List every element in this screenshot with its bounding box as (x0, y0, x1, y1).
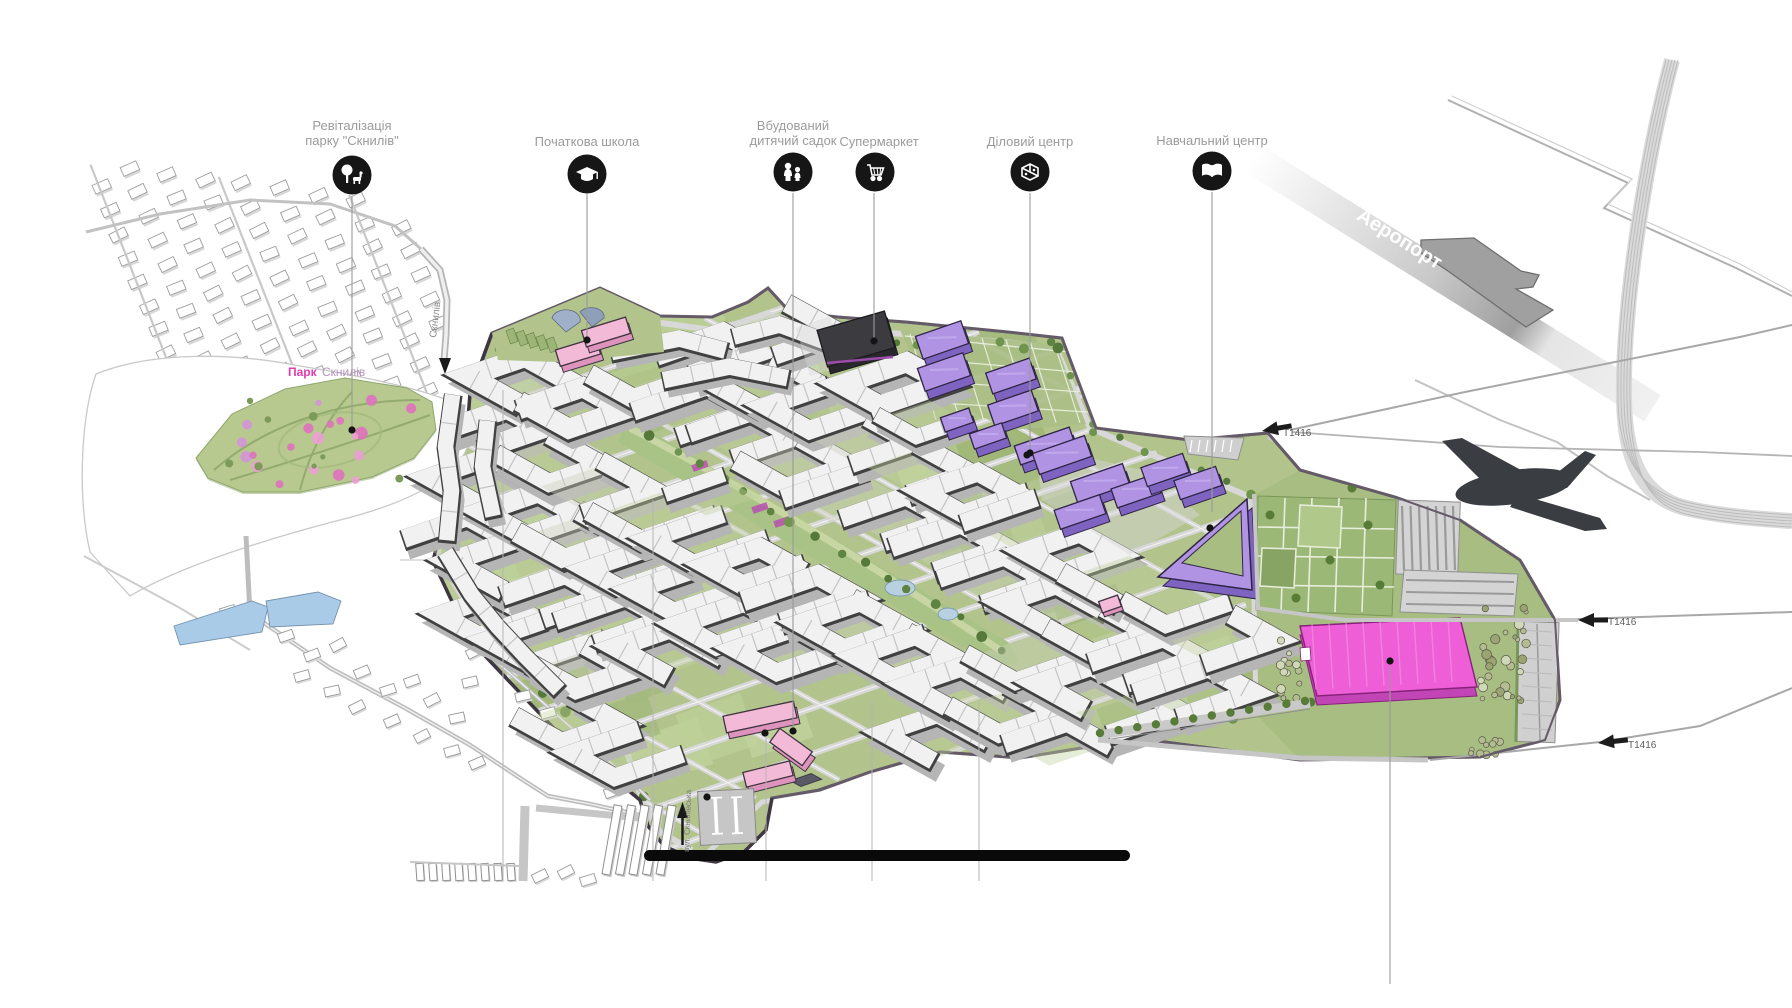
svg-text:Т1416: Т1416 (1283, 428, 1312, 439)
svg-text:Навчальний центр: Навчальний центр (1156, 133, 1268, 148)
svg-text:Ревіталізація: Ревіталізація (312, 118, 391, 133)
svg-text:Т1416: Т1416 (1608, 617, 1637, 628)
svg-text:дитячий садок: дитячий садок (750, 133, 837, 148)
svg-text:Діловий центр: Діловий центр (987, 134, 1074, 149)
svg-text:Парк: Парк (288, 365, 318, 379)
svg-text:Початкова школа: Початкова школа (535, 134, 640, 149)
svg-text:Вбудований: Вбудований (757, 118, 829, 133)
svg-text:Скнилів: Скнилів (322, 365, 365, 379)
svg-text:Т1416: Т1416 (1628, 740, 1657, 751)
svg-text:Супермаркет: Супермаркет (839, 134, 918, 149)
svg-text:парку "Скнилів": парку "Скнилів" (305, 133, 399, 148)
